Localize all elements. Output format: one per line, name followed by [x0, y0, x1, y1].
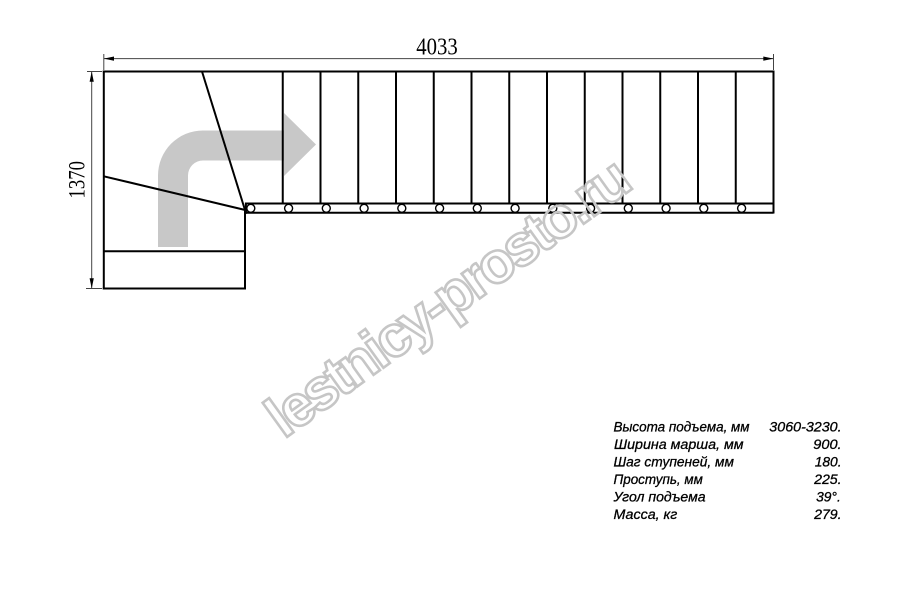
svg-text:Шаг ступеней, мм: Шаг ступеней, мм — [614, 455, 735, 471]
svg-text:4033: 4033 — [416, 34, 458, 60]
svg-text:Масса, кг: Масса, кг — [614, 507, 678, 523]
svg-text:1370: 1370 — [64, 161, 89, 199]
svg-text:180.: 180. — [815, 455, 842, 471]
svg-text:Угол подъема: Угол подъема — [613, 490, 706, 506]
svg-text:225.: 225. — [813, 472, 841, 488]
svg-text:3060-3230.: 3060-3230. — [769, 420, 841, 436]
svg-text:900.: 900. — [813, 437, 841, 453]
svg-text:Высота подъема, мм: Высота подъема, мм — [614, 420, 750, 436]
svg-text:Проступь, мм: Проступь, мм — [614, 472, 704, 488]
svg-text:Ширина марша, мм: Ширина марша, мм — [614, 437, 744, 453]
svg-text:39°.: 39°. — [816, 490, 841, 506]
svg-text:279.: 279. — [813, 507, 841, 523]
